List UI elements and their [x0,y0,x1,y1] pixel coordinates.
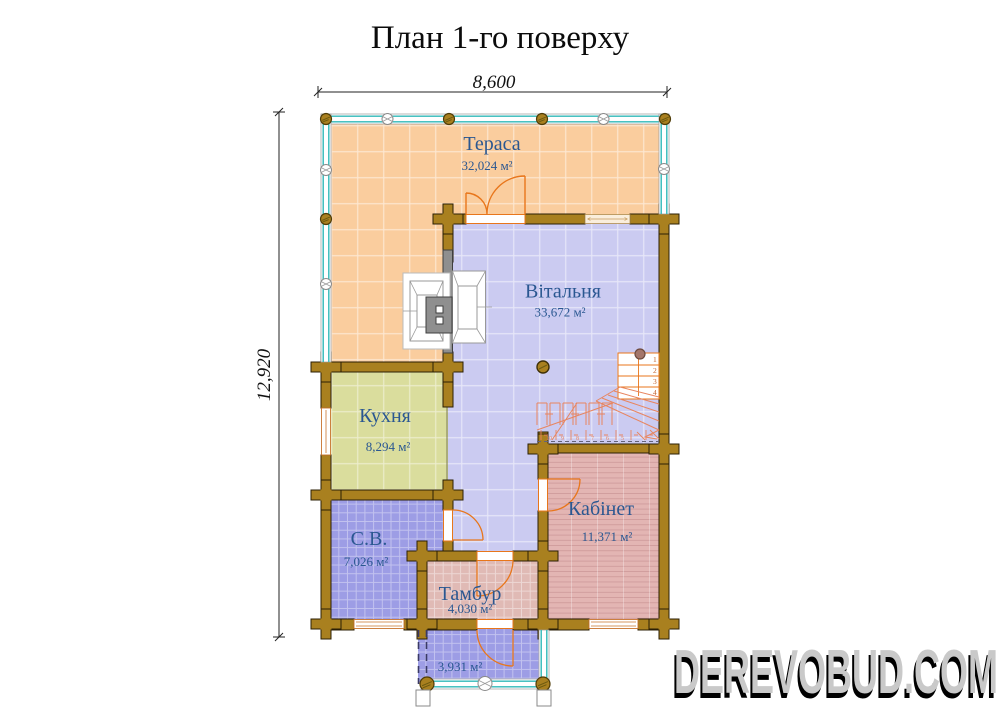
svg-text:Кухня: Кухня [359,405,411,427]
svg-text:С.В.: С.В. [351,528,388,550]
svg-text:8,294 м²: 8,294 м² [366,439,411,454]
svg-text:3: 3 [653,377,657,386]
svg-text:12,920: 12,920 [254,348,275,401]
svg-text:7,026 м²: 7,026 м² [344,554,389,569]
svg-text:32,024 м²: 32,024 м² [461,158,512,173]
svg-text:33,672 м²: 33,672 м² [534,305,585,320]
svg-text:Тераса: Тераса [463,133,520,155]
svg-text:Вітальня: Вітальня [525,281,601,303]
svg-text:4,030 м²: 4,030 м² [448,601,493,616]
svg-text:8,600: 8,600 [473,72,516,93]
svg-text:8: 8 [576,436,579,442]
svg-text:11,371 м²: 11,371 м² [582,529,633,544]
svg-text:1: 1 [653,355,657,364]
svg-text:План 1-го поверху: План 1-го поверху [371,20,630,56]
svg-text:DEREVOBUD.COM: DEREVOBUD.COM [674,638,998,707]
svg-text:Кабінет: Кабінет [568,498,634,520]
svg-text:3,931 м²: 3,931 м² [438,659,483,674]
svg-text:2: 2 [653,366,657,375]
